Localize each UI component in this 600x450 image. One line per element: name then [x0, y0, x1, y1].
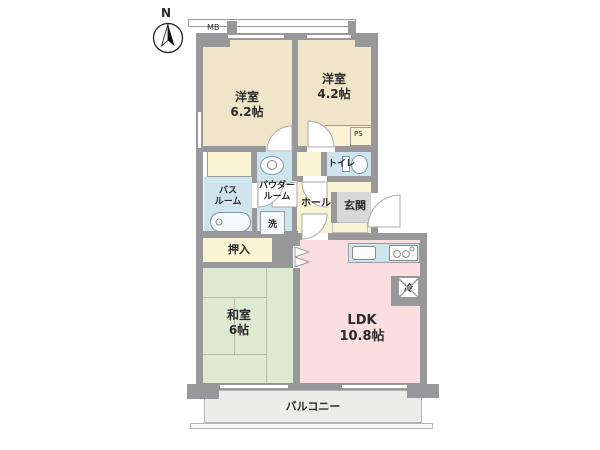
refrigerator-box: 冷 — [397, 276, 420, 299]
room-western-6-2-label: 洋室 6.2帖 — [230, 90, 263, 120]
wall-segment — [292, 146, 378, 152]
powder-label: パウダー ルーム — [259, 181, 295, 204]
window — [342, 384, 412, 389]
window — [220, 384, 288, 389]
entrance-label: 玄関 — [344, 199, 366, 213]
tatami-line — [203, 354, 267, 355]
wall-right-lower — [420, 235, 427, 390]
hall-label: ホール — [301, 198, 331, 211]
balcony-label: バルコニー — [286, 400, 341, 414]
laundry-box: 洗 — [260, 211, 285, 235]
door-opening — [252, 183, 257, 208]
door-opening — [307, 146, 335, 152]
floor-plan: 洗 冷 N MB PS 洋室 6.2帖 洋室 4.2帖 トイレ バス ルーム パ… — [0, 0, 600, 450]
room-name: LDK — [339, 313, 384, 329]
oshiire-label: 押入 — [228, 243, 250, 257]
entrance-opening — [371, 193, 378, 226]
tatami-line — [203, 297, 267, 298]
closet-western-6-2 — [207, 150, 252, 177]
room-size: 4.2帖 — [317, 87, 350, 102]
room-size: 6.2帖 — [230, 105, 263, 120]
door-opening — [266, 146, 292, 152]
wall-fridge-h — [391, 298, 421, 306]
entrance-step — [332, 222, 368, 233]
toilet-label: トイレ — [328, 159, 355, 170]
pipe-space-label: PS — [354, 130, 363, 139]
room-size: 6帖 — [227, 323, 251, 338]
door-opening — [302, 233, 328, 240]
washitsu-label: 和室 6帖 — [227, 308, 251, 338]
room-size: 10.8帖 — [339, 329, 384, 345]
powder-line1: パウダー — [259, 181, 295, 192]
powder-line2: ルーム — [259, 192, 295, 203]
wall-left — [196, 33, 203, 390]
north-label: N — [161, 6, 171, 21]
door-opening — [293, 246, 300, 268]
bathtub — [210, 212, 251, 232]
balcony-ledge — [190, 423, 433, 429]
wall-between-western-rooms — [292, 33, 298, 152]
stove — [389, 245, 418, 261]
wall-corner-block — [196, 33, 230, 47]
bath-label: バス ルーム — [215, 186, 242, 209]
ldk-label: LDK 10.8帖 — [339, 313, 384, 346]
refrigerator-label: 冷 — [404, 281, 413, 294]
laundry-label: 洗 — [268, 217, 277, 230]
door-opening — [303, 176, 327, 182]
window — [197, 112, 202, 148]
room-name: 洋室 — [317, 72, 350, 87]
room-name: 和室 — [227, 308, 251, 323]
room-western-4-2-label: 洋室 4.2帖 — [317, 72, 350, 102]
bath-line1: バス — [215, 186, 242, 197]
tatami-line — [266, 266, 267, 384]
powder-sink — [260, 156, 284, 175]
wall-entrance-left — [331, 192, 337, 223]
wall-corner-block — [355, 33, 378, 47]
balcony-pillar — [187, 384, 219, 399]
balcony-pillar — [407, 384, 439, 398]
wall-segment — [272, 236, 293, 264]
compass-icon — [154, 24, 183, 53]
meter-box-label: MB — [207, 23, 219, 33]
kitchen-sink — [352, 246, 376, 260]
room-name: 洋室 — [230, 90, 263, 105]
window — [228, 34, 284, 39]
window — [307, 34, 351, 39]
bath-line2: ルーム — [215, 197, 242, 208]
